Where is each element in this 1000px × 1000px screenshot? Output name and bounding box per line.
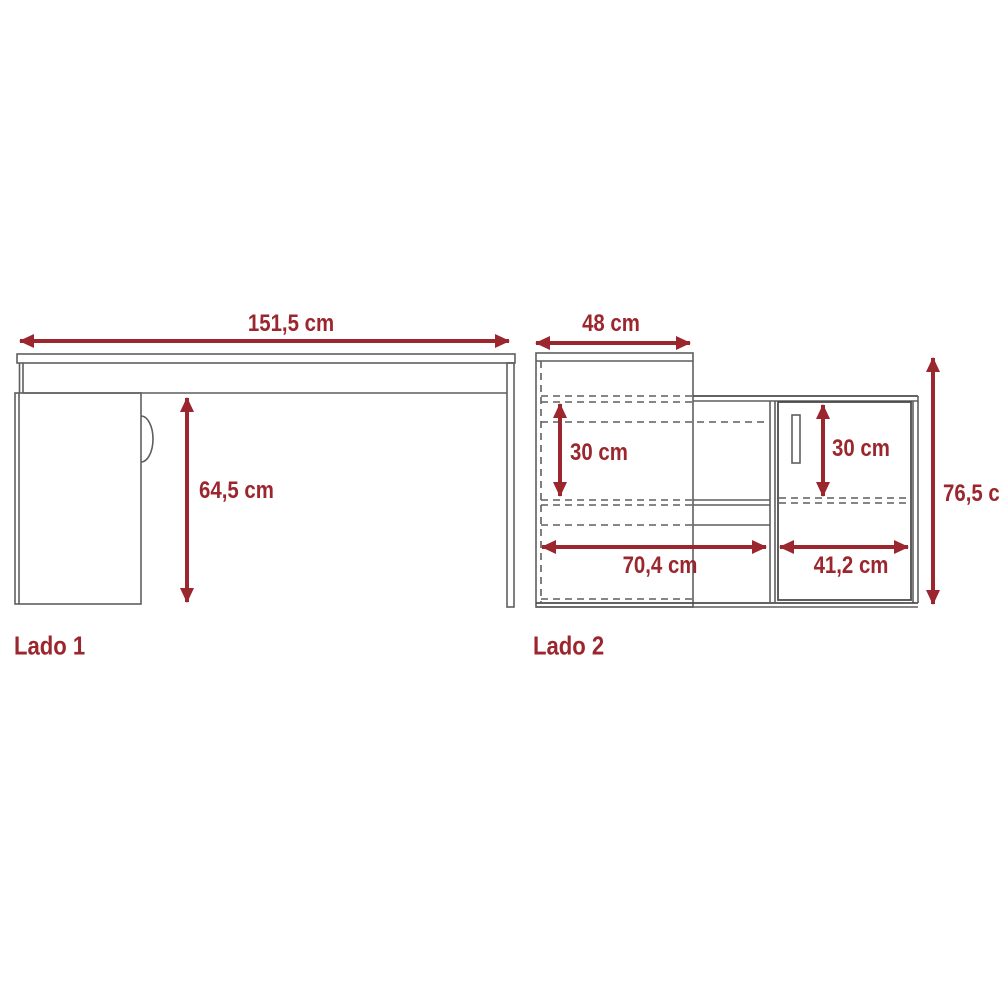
dimension-arrows: [20, 341, 933, 604]
dim-tall-cabinet-depth: 48 cm: [582, 310, 640, 338]
desk-cabinet: [15, 393, 141, 604]
desk-top: [17, 354, 515, 363]
furniture-diagram: [0, 0, 1000, 1000]
dim-left-compartment-height: 30 cm: [570, 439, 628, 467]
dim-total-height: 76,5 cm: [943, 480, 1000, 508]
dim-left-section-width: 70,4 cm: [623, 552, 698, 580]
dim-door-compartment-height: 30 cm: [832, 435, 890, 463]
view-label-lado2: Lado 2: [533, 631, 604, 662]
cabinet-handle-icon: [141, 416, 153, 462]
dim-desk-height: 64,5 cm: [199, 477, 274, 505]
dim-desk-width: 151,5 cm: [248, 310, 334, 338]
door-handle-icon: [792, 415, 800, 463]
dim-door-section-width: 41,2 cm: [814, 552, 889, 580]
desk-right-leg: [507, 363, 514, 607]
diagram-canvas: 151,5 cm 64,5 cm Lado 1 48 cm 30 cm 30 c…: [0, 0, 1000, 1000]
view-label-lado1: Lado 1: [14, 631, 85, 662]
